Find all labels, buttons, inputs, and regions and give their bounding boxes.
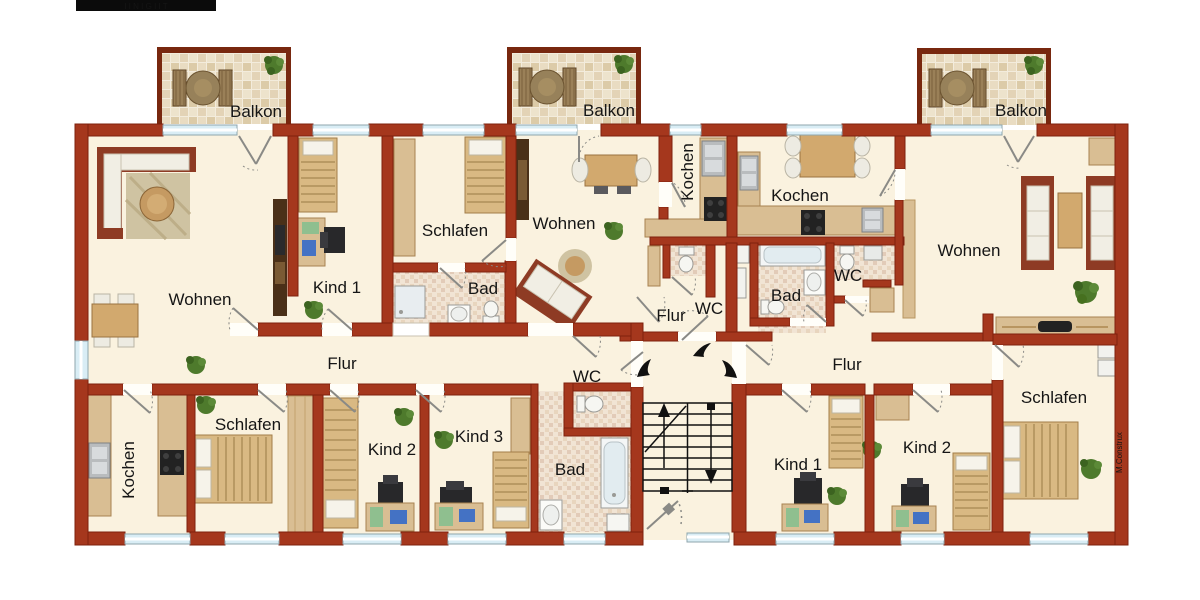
svg-text:Flur: Flur (327, 354, 357, 373)
svg-text:Kind 3: Kind 3 (455, 427, 503, 446)
svg-text:Wohnen: Wohnen (937, 241, 1000, 260)
svg-text:Bad: Bad (771, 286, 801, 305)
svg-text:Balkon: Balkon (995, 101, 1047, 120)
svg-text:Bad: Bad (468, 279, 498, 298)
svg-text:Wohnen: Wohnen (532, 214, 595, 233)
svg-text:Flur: Flur (656, 306, 686, 325)
svg-text:Schlafen: Schlafen (215, 415, 281, 434)
svg-text:WC: WC (573, 367, 601, 386)
svg-text:Balkon: Balkon (583, 101, 635, 120)
svg-text:Kochen: Kochen (119, 441, 138, 499)
svg-text:M.Construx: M.Construx (1115, 432, 1124, 473)
svg-text:WC: WC (834, 266, 862, 285)
svg-text:Schlafen: Schlafen (1021, 388, 1087, 407)
svg-text:Kochen: Kochen (678, 143, 697, 201)
svg-text:Kind 2: Kind 2 (368, 440, 416, 459)
svg-text:Kind 1: Kind 1 (774, 455, 822, 474)
svg-text:Balkon: Balkon (230, 102, 282, 121)
svg-text:Wohnen: Wohnen (168, 290, 231, 309)
svg-text:Kind 1: Kind 1 (313, 278, 361, 297)
svg-text:Bad: Bad (555, 460, 585, 479)
svg-text:I I N I G I I T: I I N I G I I T (124, 2, 168, 11)
svg-text:Schlafen: Schlafen (422, 221, 488, 240)
svg-text:WC: WC (695, 299, 723, 318)
svg-text:Kochen: Kochen (771, 186, 829, 205)
svg-text:Flur: Flur (832, 355, 862, 374)
svg-text:Kind 2: Kind 2 (903, 438, 951, 457)
